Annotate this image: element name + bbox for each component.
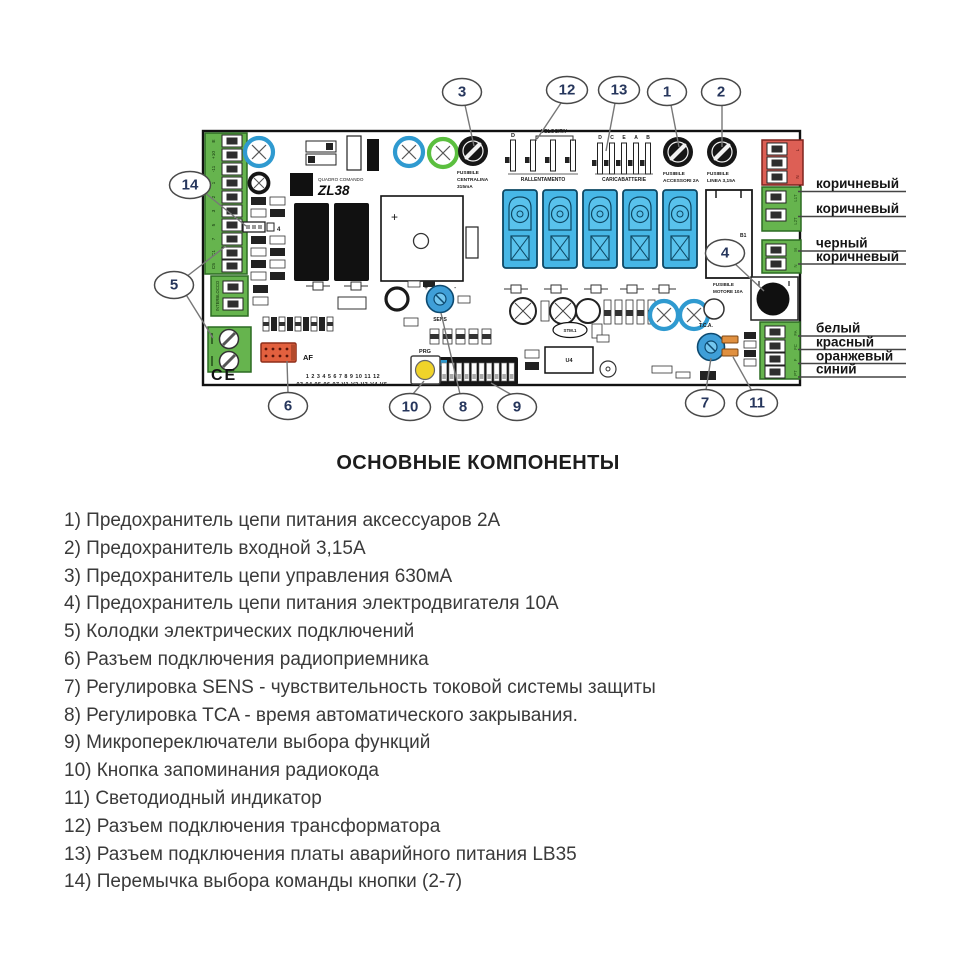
fuse-label: FUSIBILE [457, 170, 480, 176]
wire-label: коричневый [816, 201, 899, 216]
ce-mark: CE [211, 367, 237, 384]
legend-item: 12) Разъем подключения трансформатора [64, 813, 656, 841]
fuse-label: ACCESSORI 2A [663, 178, 700, 184]
fuse-label: 315mA [457, 184, 473, 190]
terminal-label: 5 [211, 223, 217, 226]
callout-number: 5 [170, 277, 178, 294]
terminal-label: 3 [211, 209, 217, 212]
velocita-label: VELOCITA' [541, 129, 567, 135]
legend-item: 3) Предохранитель цепи управления 630мА [64, 563, 656, 591]
callout-number: 11 [749, 395, 765, 412]
bridge-rectifier: + [381, 196, 478, 281]
callout-number: 9 [513, 399, 521, 416]
terminal-label: 1 [211, 181, 217, 184]
callout-14: 14 [170, 172, 211, 199]
board-diagram: E +10 -11 1 2 3 5 7 C1 C5 INTERBLOCCO CE [0, 0, 956, 440]
pin-letter: D [598, 135, 602, 141]
callout-7: 7 [686, 390, 725, 417]
af-label: AF [303, 353, 313, 362]
fuse-label: FUSIBILE [663, 171, 686, 177]
fuse-label: FUSIBILE [707, 171, 730, 177]
earth-terminal [208, 327, 251, 372]
svg-text:+: + [424, 285, 428, 292]
power-terminal: L N [762, 140, 803, 185]
callout-5: 5 [155, 272, 194, 299]
motor-terminal-label: M [793, 248, 798, 252]
tca-label: T.C.A. [699, 323, 714, 329]
legend-item: 6) Разъем подключения радиоприемника [64, 646, 656, 674]
stm-label: STM.1 [564, 328, 577, 333]
relay [623, 190, 657, 268]
limit-terminal-label: FA [793, 330, 798, 335]
legend-item: 11) Светодиодный индикатор [64, 785, 656, 813]
fuse-label: MOTORE 10A [713, 289, 743, 294]
terminal-label: -11 [211, 165, 217, 172]
terminal-label: E [211, 139, 217, 142]
limit-terminal-label: PT [793, 370, 798, 376]
sens-label: SENS [433, 317, 447, 323]
pin-letter: A [634, 135, 638, 141]
legend-item: 4) Предохранитель цепи питания электродв… [64, 590, 656, 618]
legend-item: 1) Предохранитель цепи питания аксессуар… [64, 507, 656, 535]
interlock-label: INTERBLOCCO [215, 280, 220, 311]
wire-label: красный [816, 335, 874, 350]
model-name: ZL38 [317, 183, 350, 198]
callout-number: 8 [459, 399, 467, 416]
pin-letter: C [610, 135, 614, 141]
pin-letter: B [646, 135, 650, 141]
capacitor-cluster-mid [510, 298, 655, 324]
capacitor-blue-top [395, 138, 423, 166]
motor-terminal-label: N [793, 264, 798, 267]
wire-label: белый [816, 321, 860, 336]
fuse-label: FUSIBILE [713, 282, 734, 287]
callout-4: 4 [706, 240, 745, 267]
limit-terminal-label: F [793, 358, 798, 361]
resistor-row-dip [430, 329, 491, 344]
callout-6: 6 [269, 393, 308, 420]
terminal-label: +10 [211, 151, 217, 159]
callout-2: 2 [702, 79, 741, 106]
fuse-label: CENTRALINA [457, 177, 489, 183]
motor-terminal: M N [762, 240, 801, 273]
legend-item: 2) Предохранитель входной 3,15А [64, 535, 656, 563]
limit-terminal-label: FC [793, 344, 798, 350]
relay [583, 190, 617, 268]
terminal-label: C5 [211, 263, 217, 269]
prog-label: PRG [419, 349, 431, 355]
u4-label: U4 [565, 358, 573, 364]
callout-number: 4 [721, 245, 730, 262]
wire-label: коричневый [816, 176, 899, 191]
manual-page: E +10 -11 1 2 3 5 7 C1 C5 INTERBLOCCO CE [0, 0, 956, 956]
callout-number: 14 [182, 177, 199, 194]
callout-number: 10 [402, 399, 419, 416]
legend-item: 13) Разъем подключения платы аварийного … [64, 841, 656, 869]
callout-13: 13 [599, 77, 640, 104]
resistor-row-left [263, 317, 333, 331]
components-legend: 1) Предохранитель цепи питания аксессуар… [64, 507, 656, 896]
legend-item: 10) Кнопка запоминания радиокода [64, 757, 656, 785]
callout-1: 1 [648, 79, 687, 106]
wire-label: синий [816, 362, 857, 377]
terminal-label: 7 [211, 237, 217, 240]
power-terminal-label: N [795, 175, 800, 178]
capacitor-green-top [429, 139, 457, 167]
relay [543, 190, 577, 268]
lamp-terminal: L1T L2T [762, 187, 801, 231]
callout-number: 13 [611, 82, 628, 99]
legend-item: 7) Регулировка SENS - чувствительность т… [64, 674, 656, 702]
fuse-label: LINEA 3,15A [707, 178, 736, 184]
interlock-terminal: INTERBLOCCO [211, 276, 248, 316]
callout-12: 12 [547, 77, 588, 104]
model-prefix: QUADRO COMANDO [318, 177, 364, 182]
legend-item: 14) Перемычка выбора команды кнопки (2-7… [64, 868, 656, 896]
callout-number: 12 [559, 82, 576, 99]
lamp-terminal-label: L1T [793, 194, 798, 202]
callout-number: 1 [663, 84, 671, 101]
callout-10: 10 [390, 394, 431, 421]
callout-number: 6 [284, 398, 292, 415]
callout-number: 3 [458, 84, 466, 101]
silk-row-2: 03 04 05 06 07 V1 V2 V3 V4 V5 [297, 382, 388, 388]
left-terminal-block: E +10 -11 1 2 3 5 7 C1 C5 [205, 133, 247, 274]
relay [663, 190, 697, 268]
callout-number: 7 [701, 395, 709, 412]
legend-item: 5) Колодки электрических подключений [64, 618, 656, 646]
relay [503, 190, 537, 268]
caricabatterie-label: CARICABATTERIE [602, 177, 647, 183]
wire-labels: коричневый коричневый черный коричневый … [798, 176, 906, 377]
lamp-terminal-label: L2T [793, 217, 798, 225]
callout-number: 2 [717, 84, 725, 101]
pin-letter: D [511, 133, 515, 139]
battery-connector-label: B1 [740, 233, 747, 239]
rallentamento-label: RALLENTAMENTO [521, 177, 566, 183]
section-title: ОСНОВНЫЕ КОМПОНЕНТЫ [0, 452, 956, 475]
dip-switch [437, 357, 518, 385]
callout-8: 8 [444, 394, 483, 421]
silk-row-1: 1 2 3 4 5 6 7 8 9 10 11 12 [306, 374, 380, 380]
wire-label: коричневый [816, 249, 899, 264]
svg-text:+: + [391, 210, 398, 224]
callout-9: 9 [498, 394, 537, 421]
callout-11: 11 [737, 390, 778, 417]
legend-item: 9) Микропереключатели выбора функций [64, 729, 656, 757]
legend-item: 8) Регулировка TCA - время автоматическо… [64, 702, 656, 730]
callout-3: 3 [443, 79, 482, 106]
